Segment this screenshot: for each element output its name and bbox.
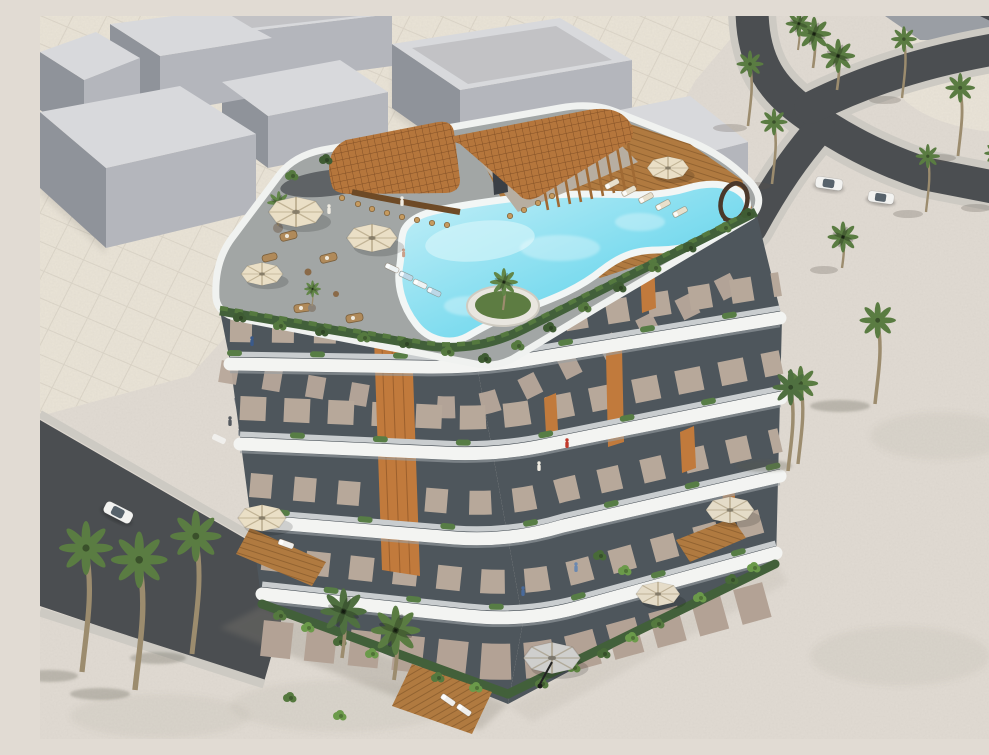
person <box>250 336 253 346</box>
umbrella-base <box>538 684 543 689</box>
person-terrace <box>327 204 330 214</box>
pedestrian <box>228 416 231 426</box>
coffee-table <box>333 291 339 297</box>
person-bar <box>400 196 403 206</box>
person <box>565 438 568 448</box>
person <box>521 586 524 596</box>
render-canvas <box>40 16 989 739</box>
person <box>537 461 540 471</box>
coffee-table <box>305 269 312 276</box>
person <box>574 562 577 572</box>
architectural-render <box>40 16 989 739</box>
